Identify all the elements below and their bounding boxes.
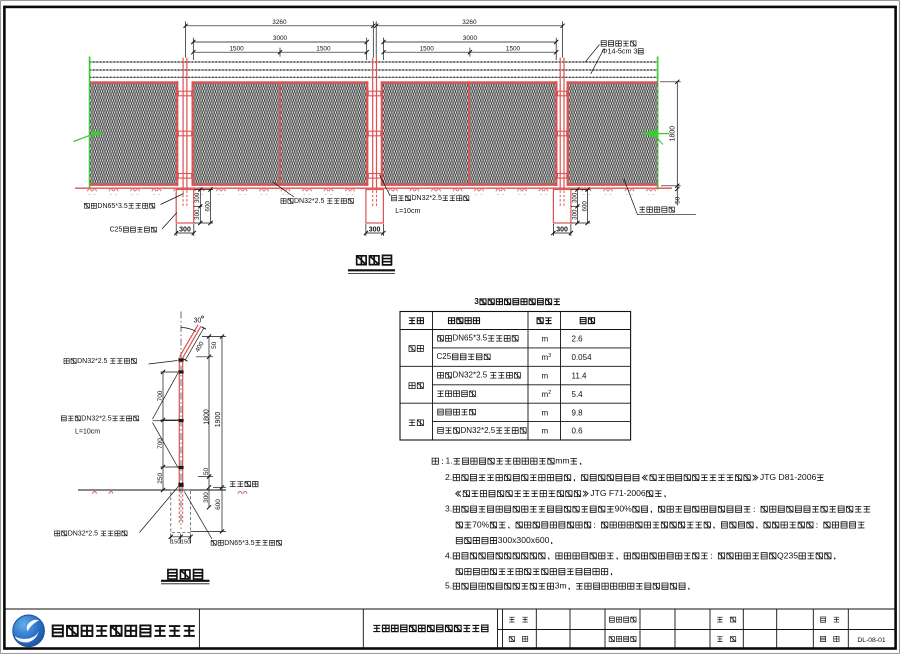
svg-text:JTG F71-2006: JTG F71-2006 (590, 488, 646, 498)
svg-text:2: 2 (548, 390, 551, 396)
svg-text:50: 50 (211, 341, 218, 349)
svg-text:1500: 1500 (506, 45, 521, 52)
svg-text:3m: 3m (555, 581, 567, 591)
svg-text:3.: 3. (445, 504, 452, 514)
svg-text:3260: 3260 (462, 19, 477, 26)
svg-text:2.6: 2.6 (572, 335, 584, 344)
svg-text:4.: 4. (445, 550, 452, 560)
svg-text:L=10cm: L=10cm (75, 428, 100, 435)
svg-text:DN32*2.5: DN32*2.5 (68, 530, 98, 537)
svg-text:300: 300 (179, 226, 191, 233)
svg-text:1.: 1. (446, 456, 453, 466)
svg-text:300: 300 (571, 192, 578, 203)
svg-text:300: 300 (571, 209, 578, 220)
svg-text:3: 3 (548, 353, 551, 359)
svg-text:600: 600 (582, 201, 589, 212)
svg-text:300x300x600: 300x300x600 (498, 535, 550, 545)
svg-text:50: 50 (203, 468, 210, 476)
svg-text:5.: 5. (445, 581, 452, 591)
svg-text:JTG D81-2006: JTG D81-2006 (760, 472, 817, 482)
svg-text:1800: 1800 (203, 409, 210, 425)
svg-text:50: 50 (675, 196, 682, 204)
svg-text:DN65*3.5: DN65*3.5 (453, 334, 488, 343)
svg-text:DN32*2.5: DN32*2.5 (453, 371, 488, 380)
svg-text:1500: 1500 (229, 45, 244, 52)
svg-text:70%: 70% (472, 519, 490, 529)
svg-text:300: 300 (369, 226, 381, 233)
svg-text:DN65*3.5: DN65*3.5 (97, 203, 127, 210)
svg-text:600: 600 (204, 201, 211, 212)
svg-text:1900: 1900 (215, 412, 222, 428)
svg-text:600: 600 (215, 499, 222, 510)
svg-text:0.6: 0.6 (572, 427, 584, 436)
svg-text:mm: mm (555, 456, 569, 466)
svg-text:3000: 3000 (273, 35, 288, 42)
svg-text:30: 30 (194, 318, 202, 325)
svg-text:90%: 90% (615, 504, 633, 514)
svg-text:DN32*2.5: DN32*2.5 (461, 426, 496, 435)
svg-text:DN32*2.5: DN32*2.5 (81, 415, 111, 422)
svg-text:Q235: Q235 (777, 550, 798, 560)
svg-text:DL-08-01: DL-08-01 (857, 637, 886, 644)
svg-text:3260: 3260 (272, 19, 287, 26)
svg-text:150: 150 (171, 540, 181, 546)
svg-text:1500: 1500 (316, 45, 331, 52)
svg-text:9.8: 9.8 (572, 408, 584, 417)
svg-text:m: m (542, 427, 549, 436)
svg-text:L=10cm: L=10cm (395, 208, 420, 215)
svg-text:DN32*2.5: DN32*2.5 (77, 358, 107, 365)
svg-text:300: 300 (194, 192, 201, 203)
svg-text:DN32*2.5: DN32*2.5 (294, 198, 324, 205)
svg-text:3000: 3000 (463, 35, 478, 42)
svg-text:1500: 1500 (420, 45, 435, 52)
svg-text:2.: 2. (445, 472, 452, 482)
svg-text:Φ14-5cm 3: Φ14-5cm 3 (602, 47, 638, 56)
svg-text:300: 300 (203, 492, 210, 503)
svg-text:11.4: 11.4 (572, 371, 588, 380)
svg-text:300: 300 (194, 209, 201, 220)
svg-text:DN65*3.5: DN65*3.5 (224, 540, 254, 547)
svg-text:C25: C25 (110, 227, 123, 234)
svg-text:3: 3 (474, 297, 479, 306)
svg-text:300: 300 (556, 226, 568, 233)
svg-text:m: m (542, 371, 549, 380)
svg-text:m: m (542, 335, 549, 344)
svg-text:DN32*2.5: DN32*2.5 (412, 195, 442, 202)
svg-text:1800: 1800 (669, 126, 676, 142)
svg-text:0.054: 0.054 (572, 353, 593, 362)
svg-text:700: 700 (157, 438, 164, 449)
svg-text:150: 150 (181, 540, 191, 546)
svg-text:250: 250 (157, 472, 164, 483)
svg-text:C25: C25 (437, 352, 452, 361)
svg-text:5.4: 5.4 (572, 390, 584, 399)
svg-text:m: m (542, 408, 549, 417)
